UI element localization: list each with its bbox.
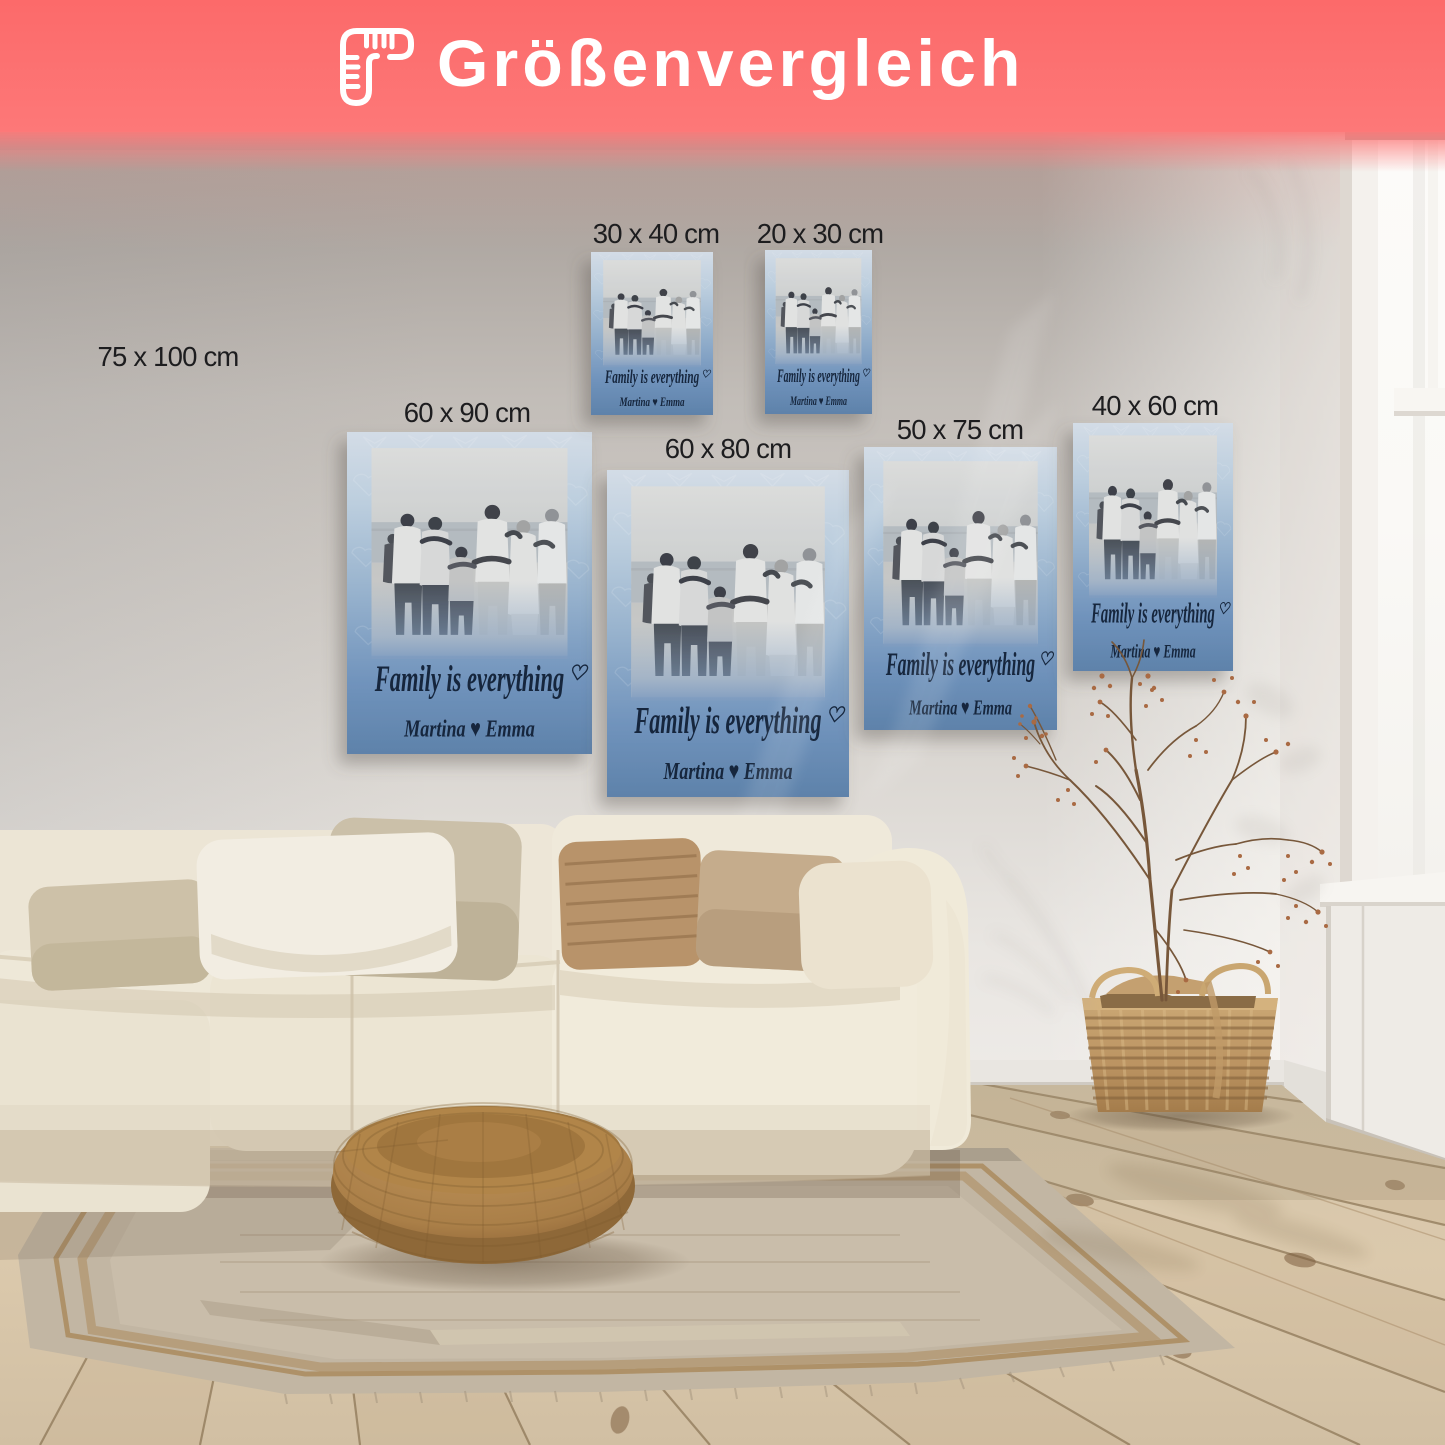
- svg-text:30 x 40 cm: 30 x 40 cm: [593, 218, 720, 249]
- svg-text:75 x 100 cm: 75 x 100 cm: [98, 341, 239, 372]
- svg-text:60 x 90 cm: 60 x 90 cm: [404, 397, 531, 428]
- svg-text:50 x 75 cm: 50 x 75 cm: [897, 414, 1024, 445]
- svg-text:Größenvergleich: Größenvergleich: [437, 26, 1025, 100]
- svg-text:20 x 30 cm: 20 x 30 cm: [757, 218, 884, 249]
- svg-text:60 x 80 cm: 60 x 80 cm: [665, 433, 792, 464]
- svg-text:40 x 60 cm: 40 x 60 cm: [1092, 390, 1219, 421]
